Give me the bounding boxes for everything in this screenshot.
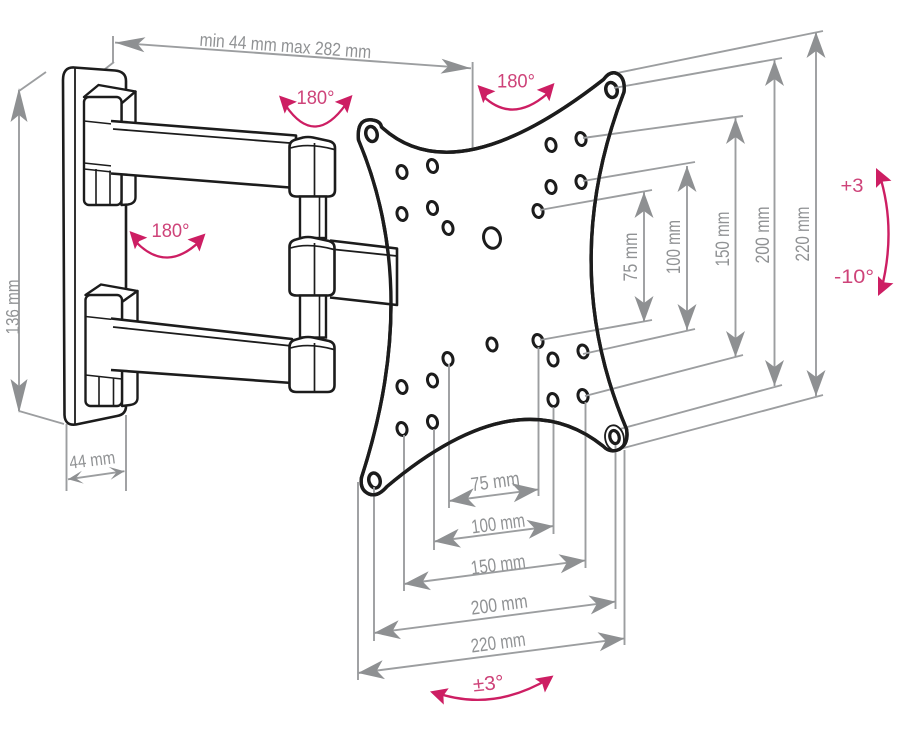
svg-text:180°: 180°: [297, 88, 335, 109]
svg-text:180°: 180°: [152, 221, 190, 242]
svg-text:150 mm: 150 mm: [712, 212, 734, 267]
svg-text:180°: 180°: [497, 72, 535, 93]
svg-text:±3°: ±3°: [472, 671, 505, 696]
svg-text:200 mm: 200 mm: [752, 207, 774, 264]
svg-text:100 mm: 100 mm: [663, 220, 685, 274]
svg-text:136 mm: 136 mm: [2, 280, 23, 335]
svg-text:75 mm: 75 mm: [620, 233, 642, 282]
svg-text:-10°: -10°: [834, 267, 874, 288]
svg-text:220 mm: 220 mm: [792, 207, 814, 262]
svg-text:+3: +3: [841, 176, 864, 197]
